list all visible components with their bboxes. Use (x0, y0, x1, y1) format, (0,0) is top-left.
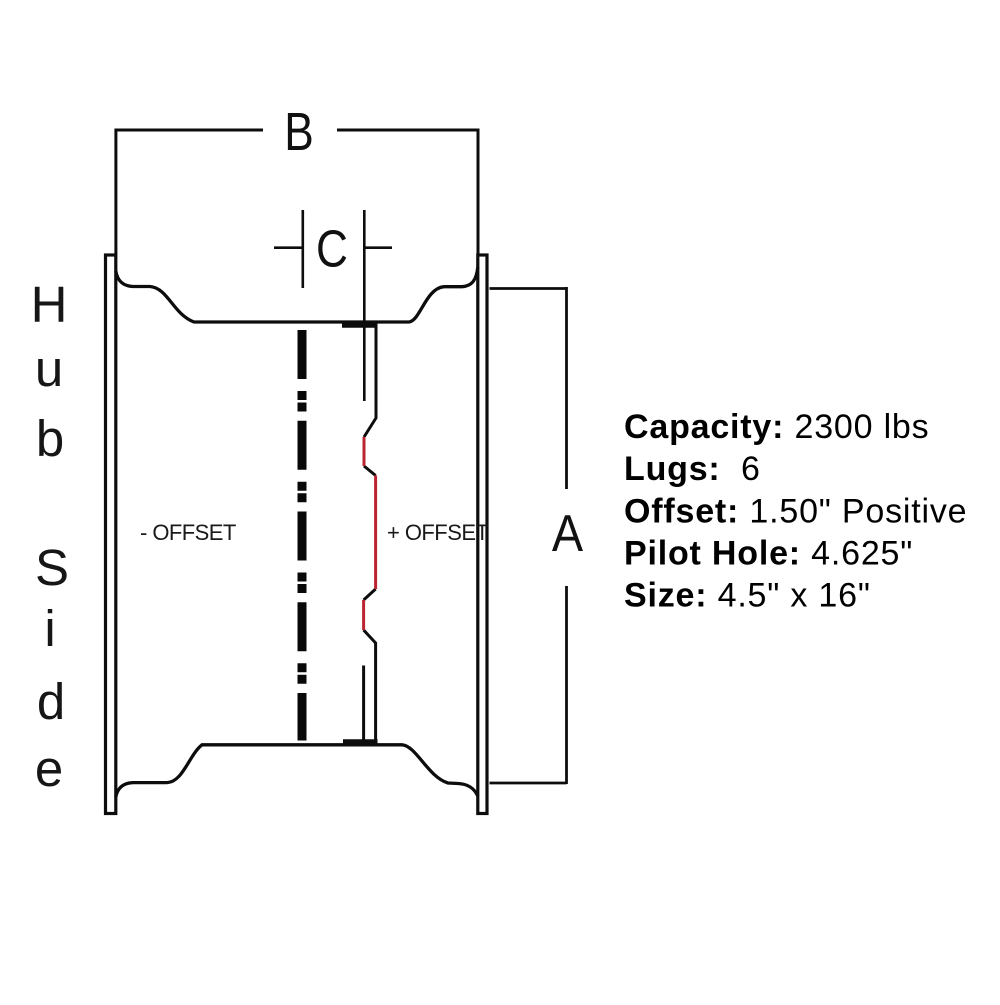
svg-text:Lugs: 6: Lugs: 6 (624, 450, 761, 488)
svg-text:i: i (44, 600, 55, 657)
svg-text:b: b (36, 410, 64, 467)
svg-text:e: e (35, 740, 63, 797)
svg-text:Capacity: 2300 lbs: Capacity: 2300 lbs (624, 408, 929, 446)
svg-text:Offset: 1.50" Positive: Offset: 1.50" Positive (624, 493, 967, 531)
svg-text:u: u (35, 340, 63, 397)
svg-text:+ OFFSET: + OFFSET (387, 520, 488, 545)
svg-text:- OFFSET: - OFFSET (140, 520, 236, 545)
svg-text:C: C (316, 220, 348, 278)
svg-text:B: B (284, 102, 314, 162)
svg-text:d: d (37, 673, 65, 730)
svg-text:S: S (35, 539, 69, 596)
svg-text:Size: 4.5" x 16": Size: 4.5" x 16" (624, 577, 871, 615)
svg-text:Pilot Hole: 4.625": Pilot Hole: 4.625" (624, 535, 913, 573)
svg-text:A: A (552, 505, 583, 563)
svg-text:H: H (31, 276, 68, 333)
